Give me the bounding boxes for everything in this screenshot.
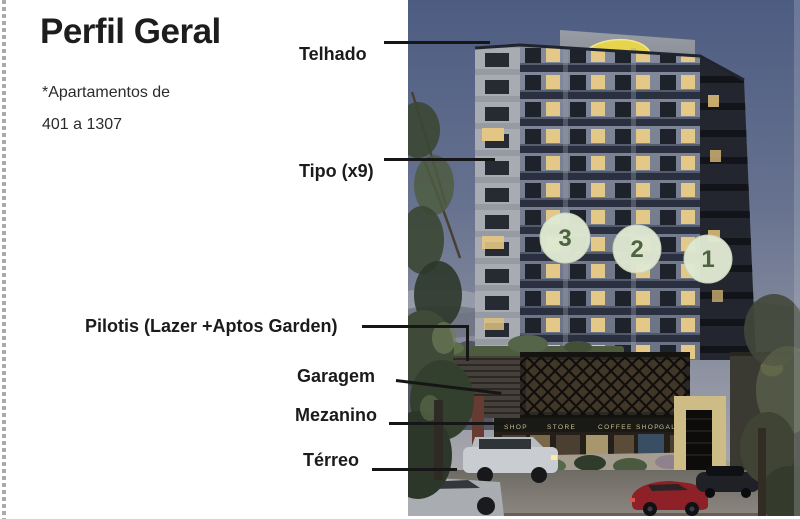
label-pilotis: Pilotis (Lazer +Aptos Garden) bbox=[85, 316, 338, 337]
slide-canvas: Perfil Geral *Apartamentos de 401 a 1307 bbox=[0, 0, 800, 519]
page-title: Perfil Geral bbox=[40, 12, 221, 52]
svg-text:3: 3 bbox=[558, 225, 571, 252]
label-garagem: Garagem bbox=[297, 366, 375, 387]
tower-marker-1: 1 bbox=[684, 235, 732, 283]
storefront-sign-store: STORE bbox=[547, 424, 576, 431]
storefront-sign-shop: SHOP bbox=[504, 424, 528, 431]
tower bbox=[475, 45, 756, 360]
label-mezanino: Mezanino bbox=[295, 405, 377, 426]
slide-edge-dashes bbox=[2, 0, 6, 519]
mezanino-leader-line bbox=[389, 422, 506, 425]
svg-text:1: 1 bbox=[701, 246, 714, 273]
label-terreo: Térreo bbox=[303, 450, 359, 471]
pilotis-leader-line-horizontal bbox=[362, 325, 469, 328]
terreo-leader-line bbox=[372, 468, 457, 471]
pilotis-leader-line-vertical bbox=[466, 325, 469, 361]
tipo-leader-line bbox=[384, 158, 495, 161]
tower-marker-2: 2 bbox=[613, 225, 661, 273]
building-rendering: CANAL bbox=[408, 0, 800, 516]
label-tipo: Tipo (x9) bbox=[299, 161, 374, 182]
telhado-leader-line bbox=[384, 41, 490, 44]
photo-right-edge-glare bbox=[794, 0, 800, 516]
subtitle-line-2: 401 a 1307 bbox=[42, 116, 122, 134]
storefront-sign-coffee: COFFEE SHOP bbox=[598, 424, 660, 431]
label-telhado: Telhado bbox=[299, 44, 367, 65]
building-illustration: CANAL bbox=[408, 0, 800, 516]
tower-marker-3: 3 bbox=[540, 213, 590, 263]
subtitle-line-1: *Apartamentos de bbox=[42, 84, 170, 102]
svg-text:2: 2 bbox=[630, 236, 643, 263]
